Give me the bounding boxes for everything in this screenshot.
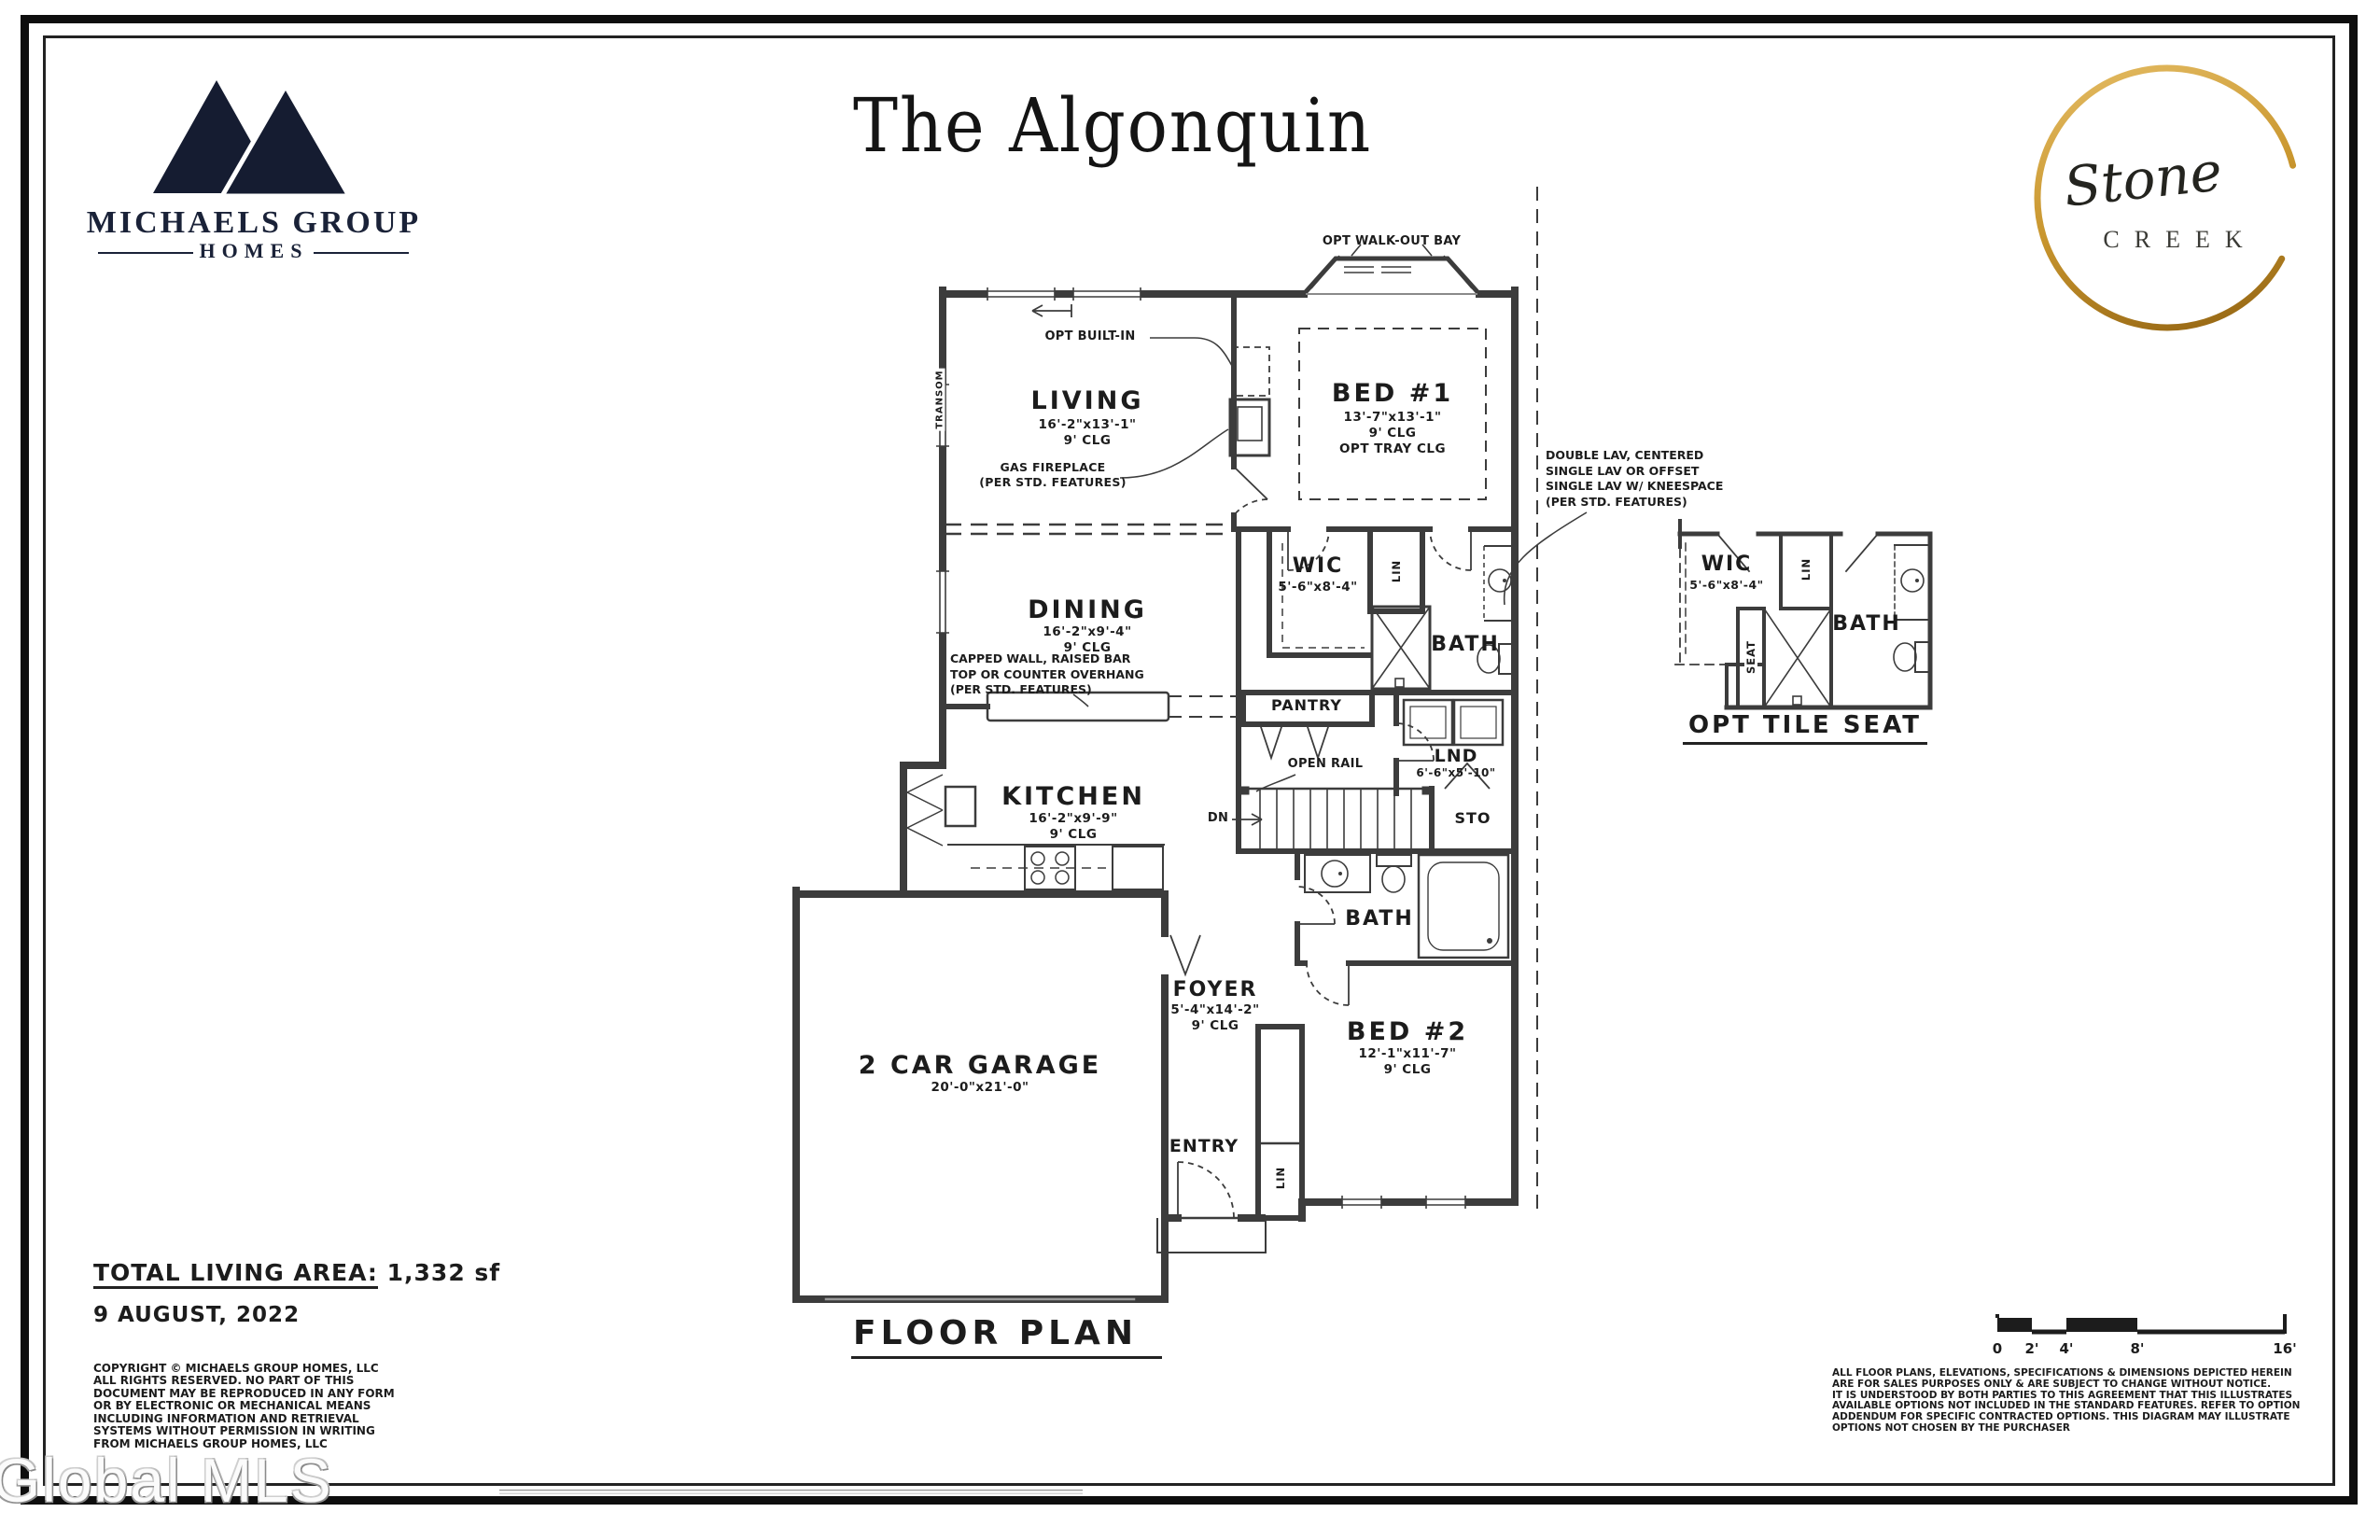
room-wic-dims: 5'-6"x8'-4" [1278,581,1357,595]
room-laundry: LND [1435,747,1478,767]
michaels-logo-icon [153,80,349,196]
note-walkout-bay: OPT WALK-OUT BAY [1323,235,1461,249]
room-wic: WIC [1293,554,1344,578]
mls-watermark: Global MLS [0,1445,333,1516]
detail-bath: BATH [1832,612,1901,636]
room-living: LIVING [1031,386,1144,415]
drawing-title: FLOOR PLAN [851,1314,1162,1359]
room-bath1: BATH [1431,633,1500,656]
note-fireplace-2: (PER STD. FEATURES) [979,476,1126,489]
room-bed1-clg: 9' CLG [1369,427,1417,441]
room-dining: DINING [1028,595,1147,624]
stairs [1241,787,1430,851]
mls-watermark-line [499,1490,1083,1494]
logo-rule-left [98,252,193,254]
plan-date: 9 AUGUST, 2022 [93,1303,300,1327]
room-foyer-dims: 5'-4"x14'-2" [1170,1003,1259,1018]
room-kitchen: KITCHEN [1001,782,1145,811]
room-bed2-dims: 12'-1"x11'-7" [1358,1047,1456,1062]
room-kitchen-dims: 16'-2"x9'-9" [1029,812,1117,827]
detail-wic-dims: 5'-6"x8'-4" [1689,579,1763,592]
scale-16ft: 16' [2273,1340,2296,1357]
builder-name-sub: HOMES [200,239,309,263]
scale-4ft: 4' [2059,1340,2073,1357]
note-built-in: OPT BUILT-IN [1044,330,1135,344]
note-transom: TRANSOM [935,368,945,430]
room-entry: ENTRY [1169,1137,1239,1157]
copyright-block: COPYRIGHT © MICHAELS GROUP HOMES, LLC AL… [93,1363,395,1450]
scale-0: 0 [1993,1340,2002,1357]
community-name-caps: CREEK [2103,226,2257,254]
room-foyer: FOYER [1173,978,1258,1001]
room-bath2: BATH [1345,907,1414,931]
disclaimer-block: ALL FLOOR PLANS, ELEVATIONS, SPECIFICATI… [1832,1368,2300,1435]
detail-caption: OPT TILE SEAT [1683,711,1927,745]
room-bed1: BED #1 [1332,379,1453,408]
room-dining-dims: 16'-2"x9'-4" [1043,625,1131,640]
note-double-lav: DOUBLE LAV, CENTERED SINGLE LAV OR OFFSE… [1546,448,1723,510]
room-living-dims: 16'-2"x13'-1" [1038,418,1136,433]
scale-2ft: 2' [2024,1340,2038,1357]
room-storage: STO [1454,810,1491,827]
closet-linen-2: LIN [1274,1165,1287,1191]
detail-linen: LIN [1799,556,1813,582]
plan-title: The Algonquin [853,82,1372,169]
stairs-dn: DN [1208,812,1228,826]
note-capped-wall: CAPPED WALL, RAISED BAR TOP OR COUNTER O… [950,651,1144,698]
room-garage: 2 CAR GARAGE [859,1051,1101,1080]
room-bed1-dims: 13'-7"x13'-1" [1343,411,1441,426]
detail-wic: WIC [1701,553,1753,576]
room-kitchen-clg: 9' CLG [1050,828,1098,843]
detail-seat: SEAT [1744,638,1757,676]
room-laundry-dims: 6'-6"x5'-10" [1416,767,1495,780]
total-living-area-label: TOTAL LIVING AREA: [93,1259,378,1289]
total-living-area: TOTAL LIVING AREA: 1,332 sf [93,1260,500,1287]
scale-8ft: 8' [2130,1340,2144,1357]
logo-rule-right [314,252,409,254]
room-pantry: PANTRY [1271,697,1342,714]
note-fireplace-1: GAS FIREPLACE [1000,461,1105,474]
total-living-area-value: 1,332 sf [387,1259,501,1286]
closet-linen-1: LIN [1390,558,1403,584]
floor-plan-sheet: MICHAELS GROUP HOMES The Algonquin Stone… [0,0,2380,1540]
room-bed2: BED #2 [1347,1017,1468,1046]
room-bed1-opt: OPT TRAY CLG [1339,442,1446,457]
note-open-rail: OPEN RAIL [1285,758,1366,772]
builder-name: MICHAELS GROUP [87,205,421,241]
scale-bar [1997,1314,2285,1334]
room-garage-dims: 20'-0"x21'-0" [931,1081,1029,1096]
room-living-clg: 9' CLG [1064,434,1112,449]
room-foyer-clg: 9' CLG [1192,1019,1239,1034]
room-bed2-clg: 9' CLG [1384,1063,1432,1078]
